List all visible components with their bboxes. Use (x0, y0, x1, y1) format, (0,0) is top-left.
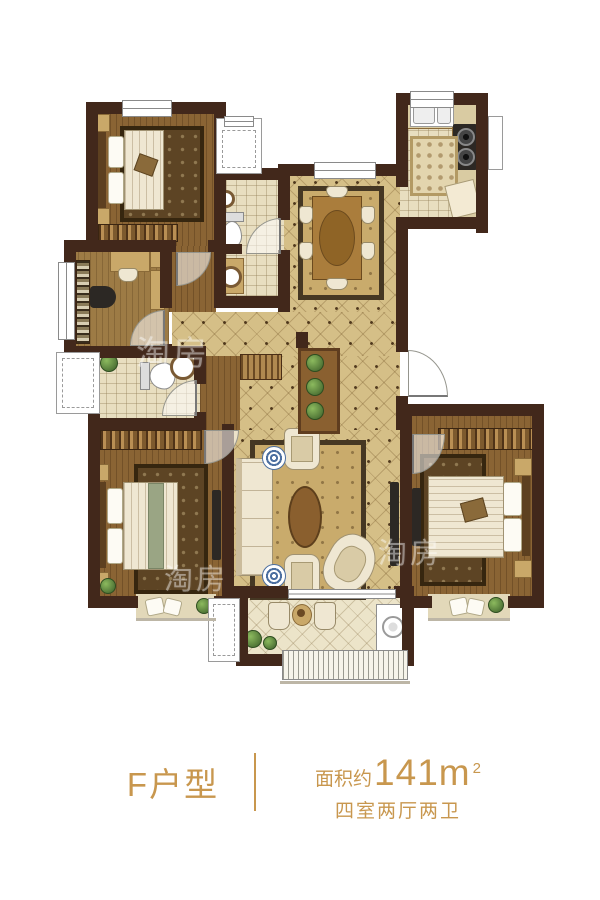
desk-chair (118, 268, 138, 282)
platform-hatch (62, 358, 94, 408)
area-prefix: 面积约 (315, 764, 372, 791)
floor-plan-image: 淘房 淘房 淘房 F户型 面积约 141m 2 四室两厅两卫 (0, 0, 600, 900)
balcony-chair (314, 602, 336, 630)
kitchen-sink-basin (437, 106, 451, 124)
dining-chair (326, 278, 348, 290)
plant-icon (306, 354, 324, 372)
bed-se-pillow (503, 482, 522, 516)
side-table-blue (262, 446, 286, 470)
plant-icon (100, 578, 116, 594)
wall-segment (86, 102, 98, 252)
area-value: 141m (374, 752, 471, 794)
unit-info: 面积约 141m 2 四室两厅两卫 (298, 752, 498, 823)
wall-segment (214, 168, 226, 308)
washer-drum (382, 616, 404, 638)
platform-hatch (213, 604, 235, 656)
area-superscript: 2 (473, 760, 481, 777)
armchair-dark (90, 286, 116, 308)
watermark: 淘房 (164, 556, 228, 598)
shoe-cabinet (240, 354, 282, 380)
window (122, 100, 172, 117)
wall-segment (236, 654, 286, 666)
bay-sill (428, 618, 510, 621)
wall-segment (400, 416, 412, 608)
bookshelf (76, 260, 90, 344)
bed-nw-pillow (108, 172, 124, 204)
nightstand (514, 560, 532, 578)
balcony-outer-sill (280, 681, 410, 684)
plant-icon (306, 378, 324, 396)
dining-chair (326, 186, 348, 198)
side-table-blue (262, 564, 286, 588)
bed-nw-pillow (108, 136, 124, 168)
dining-table-inlay (319, 210, 355, 266)
plant-icon (263, 636, 277, 650)
wall-segment (396, 217, 488, 229)
teapot (297, 609, 305, 617)
window (58, 262, 75, 340)
bay-sill (136, 618, 216, 621)
bed-sw-pillow (107, 528, 123, 564)
wall-segment (396, 225, 408, 352)
bed-nw-headboard (98, 130, 106, 208)
area-line: 面积约 141m 2 (298, 752, 498, 794)
platform-hatch (222, 130, 256, 168)
stove-burner (457, 128, 475, 146)
tv-bedroom-sw (212, 490, 221, 560)
bed-sw-throw (148, 483, 164, 569)
nightstand (514, 458, 532, 476)
bay-cushion (466, 597, 486, 616)
armchair-cushion (291, 562, 313, 590)
window (314, 162, 376, 179)
wall-segment (476, 93, 488, 233)
caption-divider (254, 753, 256, 811)
unit-type-label: F户型 (118, 758, 228, 806)
entry-door (408, 350, 448, 397)
dining-chair (361, 242, 375, 260)
wall-segment (404, 404, 544, 416)
dining-chair (361, 206, 375, 224)
flue-shaft (488, 116, 503, 170)
balcony-door-threshold (288, 589, 396, 599)
wall-segment (86, 240, 176, 252)
stove-burner (457, 148, 475, 166)
wall-segment (396, 93, 408, 187)
dining-chair (299, 206, 313, 224)
dining-chair (299, 242, 313, 260)
bed-se-headboard (522, 476, 530, 556)
wall-segment (532, 404, 544, 608)
kitchen-sink-basin (413, 106, 435, 124)
sofa (236, 458, 273, 576)
wall-segment (214, 244, 242, 254)
balcony-chair (268, 602, 290, 630)
armchair-cushion (291, 436, 313, 462)
window (410, 91, 454, 108)
room-layout-label: 四室两厅两卫 (298, 796, 498, 823)
coffee-table (288, 486, 322, 548)
balcony-railing (282, 650, 408, 680)
wall-segment (214, 296, 290, 308)
watermark: 淘房 (378, 530, 442, 572)
platform-window (224, 116, 254, 127)
wall-segment (88, 596, 138, 608)
plant-icon (488, 597, 504, 613)
wall-segment (96, 418, 204, 430)
watermark: 淘房 (136, 326, 210, 375)
wardrobe-sw (100, 430, 202, 450)
wardrobe-se (438, 428, 534, 450)
plant-icon (306, 402, 324, 420)
wall-segment (296, 332, 308, 348)
bed-sw-pillow (107, 488, 123, 524)
bed-se-pillow (503, 518, 522, 552)
wall-segment (508, 596, 544, 608)
